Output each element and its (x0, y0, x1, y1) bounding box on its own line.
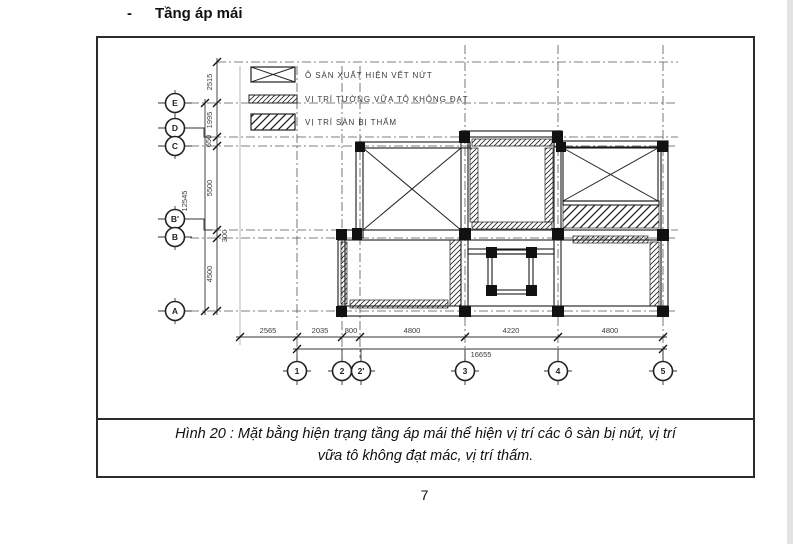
leaking-slab-zone (563, 205, 659, 228)
axis-bubble-D: D (172, 123, 178, 133)
page-number: 7 (96, 487, 753, 503)
dim-h-4800b: 4800 (602, 326, 619, 335)
dim-h-4800a: 4800 (404, 326, 421, 335)
dim-v-total: 12545 (180, 191, 189, 212)
col-axis-bubbles: 1 2 2' 3 4 5 (283, 357, 677, 385)
axis-bubble-2p: 2' (358, 366, 365, 376)
dim-h-800: 800 (345, 326, 358, 335)
axis-bubble-1: 1 (295, 366, 300, 376)
dim-v-2515: 2515 (205, 74, 214, 91)
axis-bubble-C: C (172, 141, 178, 151)
dim-v-300: 300 (220, 230, 229, 243)
legend-label-plaster: VỊ TRÍ TƯỜNG VỮA TÔ KHÔNG ĐẠT (305, 95, 469, 104)
dim-v-4500: 4500 (205, 266, 214, 283)
axis-bubble-2: 2 (340, 366, 345, 376)
legend: Ô SÀN XUẤT HIỆN VẾT NỨT VỊ TRÍ TƯỜNG VỮA… (249, 67, 469, 130)
legend-plaster-symbol (249, 95, 297, 103)
dim-h-2565: 2565 (260, 326, 277, 335)
axis-bubble-Bp: B' (171, 214, 179, 224)
hatch-zones (341, 139, 659, 308)
dim-v-5500: 5500 (205, 180, 214, 197)
legend-label-crack: Ô SÀN XUẤT HIỆN VẾT NỨT (305, 70, 433, 80)
dim-h-2035: 2035 (312, 326, 329, 335)
dim-v-650: 650 (204, 135, 213, 148)
axis-bubble-4: 4 (556, 366, 561, 376)
legend-label-leak: VỊ TRÍ SÀN BỊ THẤM (305, 117, 397, 127)
axis-bubble-5: 5 (661, 366, 666, 376)
dim-v-1995: 1995 (205, 112, 214, 129)
axis-bubble-A: A (172, 306, 178, 316)
axis-bubble-B: B (172, 232, 178, 242)
dim-h-total: 16655 (471, 350, 492, 359)
axis-bubble-3: 3 (463, 366, 468, 376)
axis-bubble-E: E (172, 98, 178, 108)
dim-h-4220: 4220 (503, 326, 520, 335)
legend-leak-symbol (251, 114, 295, 130)
floor-plan-drawing: 2515 1995 650 5500 300 4500 12545 2565 2… (0, 0, 793, 544)
